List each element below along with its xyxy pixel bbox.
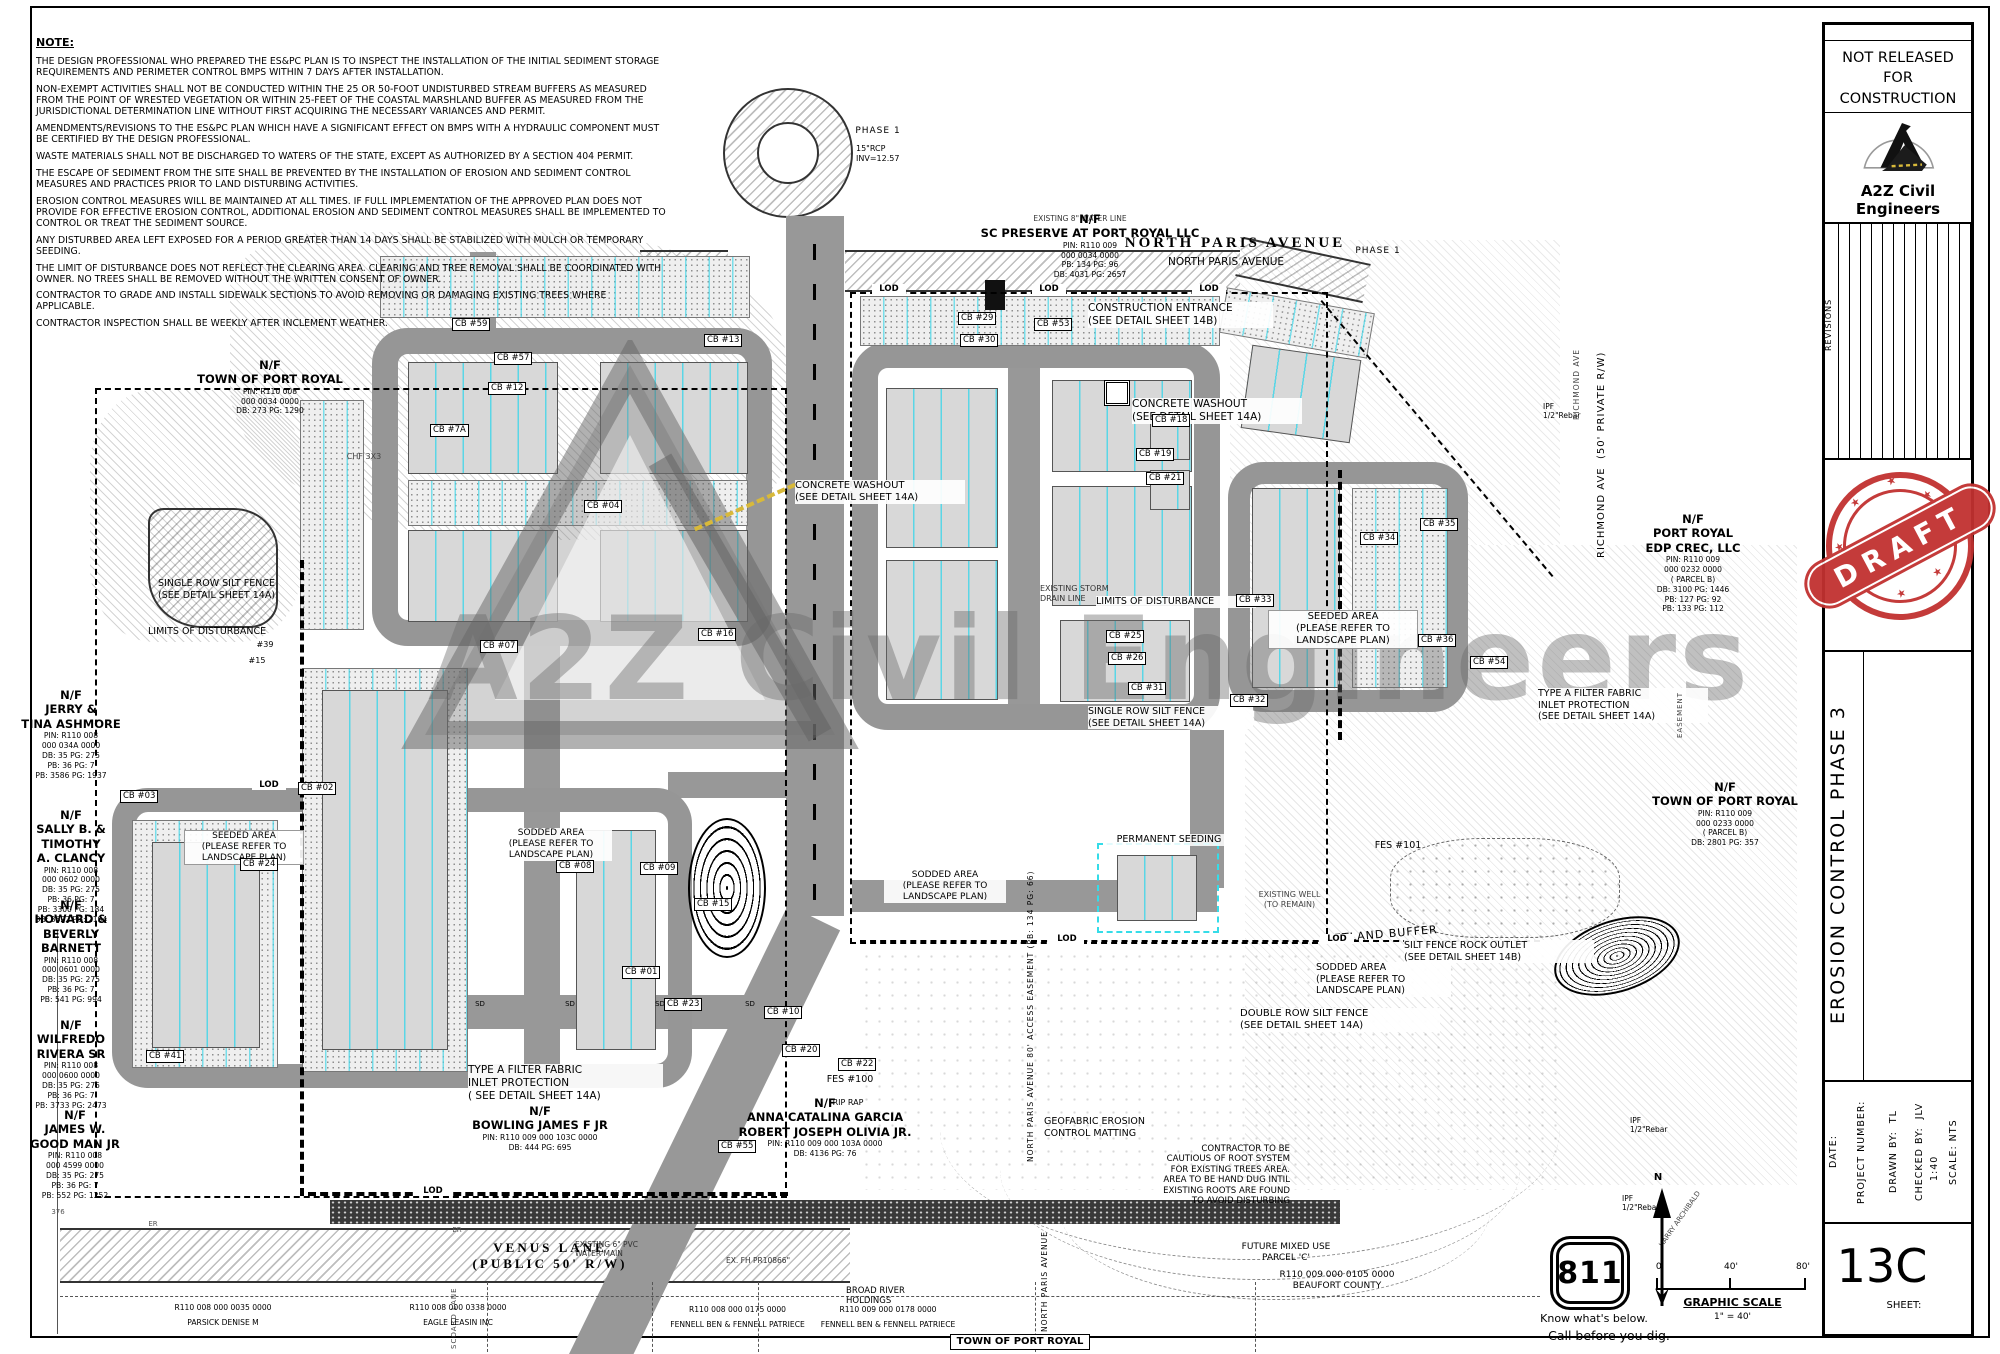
owner-label: N/F TOWN OF PORT ROYAL PIN: R110 009 000… bbox=[1640, 780, 1810, 848]
cb-label: CB #23 bbox=[664, 998, 702, 1011]
owner-name: N/F JAMES W. GOOD MAN JR bbox=[5, 1108, 145, 1151]
callout-existing-well: EXISTING WELL (TO REMAIN) bbox=[1232, 890, 1347, 910]
callout-chf: CHF 3X3 bbox=[334, 452, 394, 462]
owner-name: N/F WILFREDO RIVERA SR bbox=[5, 1018, 137, 1061]
north-arrow-icon bbox=[1640, 1188, 1684, 1314]
callout-fes-100: FES #100 bbox=[814, 1074, 886, 1086]
cb-label: CB #09 bbox=[640, 862, 678, 875]
field-project-number: PROJECT NUMBER: bbox=[1856, 1088, 1870, 1216]
dig-811-icon: 811 bbox=[1556, 1242, 1624, 1304]
note-item: WASTE MATERIALS SHALL NOT BE DISCHARGED … bbox=[36, 152, 668, 163]
cb-label: CB #36 bbox=[1418, 634, 1456, 647]
cb-label: CB #24 bbox=[240, 858, 278, 871]
note-item: THE ESCAPE OF SEDIMENT FROM THE SITE SHA… bbox=[36, 169, 668, 191]
cb-label: CB #26 bbox=[1108, 652, 1146, 665]
sheet-title: EROSION CONTROL PHASE 3 bbox=[1827, 658, 1863, 1072]
field-scale: SCALE: NTS bbox=[1948, 1088, 1962, 1216]
callout-rcp: 15"RCP INV=12.57 bbox=[856, 144, 926, 164]
owner-label: N/F HOWARD & BEVERLY BARNETT PIN: R110 0… bbox=[5, 898, 137, 1005]
lod-label: LOD bbox=[1320, 934, 1354, 944]
owner-details: PIN: R110 009 000 0233 0000 ( PARCEL B) … bbox=[1640, 809, 1810, 848]
owner-name: N/F HOWARD & BEVERLY BARNETT bbox=[5, 898, 137, 956]
owner-details: PIN: R110 008 000 0034 0000 DB: 273 PG: … bbox=[185, 387, 355, 417]
callout-contractor-roots: CONTRACTOR TO BE CAUTIOUS OF ROOT SYSTEM… bbox=[1080, 1144, 1290, 1207]
sd-label: SD bbox=[470, 1000, 490, 1009]
silt-fence bbox=[308, 1192, 788, 1196]
notes-title: NOTE: bbox=[36, 36, 668, 49]
lod-label: LOD bbox=[1050, 934, 1084, 944]
callout-ipf: IPF 1/2"Rebar bbox=[1630, 1116, 1690, 1134]
sd-label: SD bbox=[560, 1000, 580, 1009]
callout-fes-101: FES #101 bbox=[1362, 840, 1434, 852]
field-checked-scale: 1:40 bbox=[1929, 1120, 1941, 1216]
note-item: CONTRACTOR TO GRADE AND INSTALL SIDEWALK… bbox=[36, 291, 668, 313]
revisions-grid bbox=[1838, 224, 1974, 458]
callout-future-use: FUTURE MIXED USE PARCEL 'C' bbox=[1216, 1242, 1356, 1264]
sheet-canvas: A2Z Civil Engineers NOTE: THE DESIGN PRO… bbox=[0, 0, 2000, 1354]
lod-label: LOD bbox=[416, 1186, 450, 1196]
lod-label: LOD bbox=[1032, 284, 1066, 294]
callout-sodded-area: SODDED AREA (PLEASE REFER TO LANDSCAPE P… bbox=[884, 870, 1006, 903]
owner-label: N/F JAMES W. GOOD MAN JR PIN: R110 008 0… bbox=[5, 1108, 145, 1200]
owner-label: N/F ANNA CATALINA GARCIA ROBERT JOSEPH O… bbox=[690, 1096, 960, 1159]
callout-sodded-area: SODDED AREA (PLEASE REFER TO LANDSCAPE P… bbox=[490, 828, 612, 861]
cb-label: CB #07 bbox=[480, 640, 518, 653]
owner-details: PIN: R110 009 000 0034 0000 PB: 134 PG: … bbox=[1030, 241, 1150, 280]
note-item: THE LIMIT OF DISTURBANCE DOES NOT REFLEC… bbox=[36, 264, 668, 286]
parcel-divider bbox=[1255, 1282, 1256, 1352]
callout-limits: LIMITS OF DISTURBANCE bbox=[148, 626, 308, 638]
callout-limits: LIMITS OF DISTURBANCE bbox=[1096, 596, 1256, 608]
north-label: N bbox=[1648, 1172, 1668, 1184]
label-phase-1: PHASE 1 bbox=[846, 126, 910, 137]
cb-label: CB #25 bbox=[1106, 630, 1144, 643]
callout-silt-fence: SINGLE ROW SILT FENCE (SEE DETAIL SHEET … bbox=[158, 578, 323, 601]
owner-label: N/F TOWN OF PORT ROYAL PIN: R110 008 000… bbox=[185, 358, 355, 416]
cb-label: CB #18 bbox=[1152, 414, 1190, 427]
label-phase-1: PHASE 1 bbox=[1346, 246, 1410, 257]
cb-label: CB #19 bbox=[1136, 448, 1174, 461]
owner-label: N/F PORT ROYAL EDP CREC, LLC PIN: R110 0… bbox=[1618, 512, 1768, 614]
owner-name: N/F ANNA CATALINA GARCIA ROBERT JOSEPH O… bbox=[690, 1096, 960, 1139]
cb-label: CB #33 bbox=[1236, 594, 1274, 607]
cb-label: CB #30 bbox=[960, 334, 998, 347]
cb-label: CB #03 bbox=[120, 790, 158, 803]
owner-label: N/F WILFREDO RIVERA SR PIN: R110 008 000… bbox=[5, 1018, 137, 1110]
owner-name: N/F BOWLING JAMES F JR bbox=[440, 1104, 640, 1133]
callout-er: ER bbox=[446, 1226, 468, 1235]
cb-label: CB #54 bbox=[1470, 656, 1508, 669]
cb-label: CB #7A bbox=[430, 424, 469, 437]
road-label-paris-bottom: NORTH PARIS AVENUE bbox=[1040, 1222, 1052, 1342]
label-easement: EASEMENT bbox=[1676, 680, 1688, 750]
sheet-number: 13C bbox=[1836, 1238, 1928, 1294]
note-item: CONTRACTOR INSPECTION SHALL BE WEEKLY AF… bbox=[36, 319, 668, 330]
owner-details: PIN: R110 009 000 0232 0000 ( PARCEL B) … bbox=[1618, 555, 1768, 614]
road-label-venus-lane: VENUS LANE (PUBLIC 50' R/W) bbox=[460, 1240, 640, 1272]
scale-tick-80: 80' bbox=[1788, 1262, 1818, 1273]
release-note: NOT RELEASED FOR CONSTRUCTION bbox=[1826, 48, 1970, 109]
road-label-richmond: RICHMOND AVE (50' PRIVATE R/W) bbox=[1596, 280, 1612, 630]
callout-hash39: #39 bbox=[248, 640, 282, 650]
parcel-line bbox=[60, 1296, 1540, 1297]
cb-label: CB #20 bbox=[782, 1044, 820, 1057]
callout-er: ER bbox=[142, 1220, 164, 1229]
note-item: THE DESIGN PROFESSIONAL WHO PREPARED THE… bbox=[36, 57, 668, 79]
owner-name: N/F PORT ROYAL EDP CREC, LLC bbox=[1618, 512, 1768, 555]
tb-divider bbox=[1822, 112, 1974, 113]
cb-label: CB #16 bbox=[698, 628, 736, 641]
owner-name: N/F SALLY B. & TIMOTHY A. CLANCY bbox=[5, 808, 137, 866]
revisions-label: REVISIONS bbox=[1824, 280, 1836, 370]
parcel-label: R110 008 000 0338 0000 EAGLE LEASIN INC bbox=[358, 1300, 558, 1330]
cb-label: CB #53 bbox=[1034, 318, 1072, 331]
owner-name: N/F JERRY & TINA ASHMORE bbox=[5, 688, 137, 731]
sheet-number-label: SHEET: bbox=[1874, 1300, 1934, 1312]
callout-concrete-washout: CONCRETE WASHOUT (SEE DETAIL SHEET 14A) bbox=[795, 480, 965, 504]
parcel-label: R110 008 000 0035 0000 PARSICK DENISE M bbox=[118, 1300, 328, 1330]
lod-label: LOD bbox=[252, 780, 286, 790]
callout-fire-hydrant: EX. FH PR10866" bbox=[726, 1256, 826, 1265]
field-drawn-by: DRAWN BY: TL bbox=[1888, 1088, 1902, 1216]
label-town-of-port-royal: TOWN OF PORT ROYAL bbox=[950, 1334, 1090, 1350]
cb-label: CB #02 bbox=[298, 782, 336, 795]
callout-geofabric: GEOFABRIC EROSION CONTROL MATTING bbox=[1044, 1116, 1204, 1139]
scale-bar-mid bbox=[1729, 1278, 1731, 1290]
company-logo-icon bbox=[1858, 118, 1938, 176]
note-item: NON-EXEMPT ACTIVITIES SHALL NOT BE CONDU… bbox=[36, 85, 668, 118]
dig-know-text: Know what's below. bbox=[1524, 1312, 1664, 1325]
tb-divider bbox=[1822, 458, 1974, 460]
tb-divider bbox=[1822, 1222, 1974, 1224]
cb-label: CB #57 bbox=[494, 352, 532, 365]
company-name: A2Z Civil Engineers bbox=[1824, 182, 1972, 219]
cb-label: CB #13 bbox=[704, 334, 742, 347]
tb-divider bbox=[1863, 650, 1864, 1080]
cb-label: CB #32 bbox=[1230, 694, 1268, 707]
owner-name: N/F TOWN OF PORT ROYAL bbox=[1640, 780, 1810, 809]
callout-double-silt-fence: DOUBLE ROW SILT FENCE (SEE DETAIL SHEET … bbox=[1240, 1008, 1440, 1032]
callout-permanent-seeding: PERMANENT SEEDING bbox=[1104, 834, 1234, 846]
road-label-paris-easement: NORTH PARIS AVENUE 80' ACCESS EASEMENT (… bbox=[1026, 846, 1040, 1186]
lod-label: LOD bbox=[1192, 284, 1226, 294]
cb-label: CB #21 bbox=[1146, 472, 1184, 485]
owner-name: N/F SC PRESERVE AT PORT ROYAL LLC bbox=[975, 212, 1205, 241]
callout-rock-outlet: SILT FENCE ROCK OUTLET (SEE DETAIL SHEET… bbox=[1404, 940, 1594, 963]
owner-details: PIN: R110 009 000 103C 0000 DB: 444 PG: … bbox=[440, 1133, 640, 1153]
tb-divider bbox=[1822, 40, 1974, 41]
cb-label: CB #08 bbox=[556, 860, 594, 873]
callout-376: 376 bbox=[42, 1208, 74, 1217]
tb-divider bbox=[1822, 650, 1974, 652]
callout-beaufort: R110 009 000 0105 0000 BEAUFORT COUNTY bbox=[1252, 1270, 1422, 1292]
note-item: ANY DISTURBED AREA LEFT EXPOSED FOR A PE… bbox=[36, 236, 668, 258]
parcel-label: R110 009 000 0178 0000 FENNELL BEN & FEN… bbox=[788, 1302, 988, 1332]
note-item: EROSION CONTROL MEASURES WILL BE MAINTAI… bbox=[36, 197, 668, 230]
scale-tick-40: 40' bbox=[1716, 1262, 1746, 1273]
owner-details: PIN: R110 008 000 034A 0000 DB: 35 PG: 2… bbox=[5, 731, 137, 780]
cb-label: CB #41 bbox=[146, 1050, 184, 1063]
notes-block: NOTE: THE DESIGN PROFESSIONAL WHO PREPAR… bbox=[36, 36, 668, 330]
callout-construction-entrance: CONSTRUCTION ENTRANCE (SEE DETAIL SHEET … bbox=[1088, 302, 1273, 328]
callout-sodded-area: SODDED AREA (PLEASE REFER TO LANDSCAPE P… bbox=[1316, 962, 1451, 997]
sd-label: SD bbox=[740, 1000, 760, 1009]
cb-label: CB #12 bbox=[488, 382, 526, 395]
callout-silt-fence: SINGLE ROW SILT FENCE (SEE DETAIL SHEET … bbox=[1088, 706, 1253, 729]
scale-bar bbox=[1656, 1278, 1806, 1290]
owner-label: N/F BOWLING JAMES F JR PIN: R110 009 000… bbox=[440, 1104, 640, 1152]
cb-label: CB #01 bbox=[622, 966, 660, 979]
cb-label: CB #34 bbox=[1360, 532, 1398, 545]
cb-label: CB #29 bbox=[958, 312, 996, 325]
callout-seeded-area: SEEDED AREA (PLEASE REFER TO LANDSCAPE P… bbox=[1268, 610, 1418, 649]
road-label-richmond-small: RICHMOND AVE bbox=[1572, 320, 1584, 450]
cb-label: CB #35 bbox=[1420, 518, 1458, 531]
owner-details: PIN: R110 008 000 4599 0000 DB: 35 PG: 2… bbox=[5, 1151, 145, 1200]
cb-label: CB #31 bbox=[1128, 682, 1166, 695]
cb-label: CB #04 bbox=[584, 500, 622, 513]
owner-label: N/F JERRY & TINA ASHMORE PIN: R110 008 0… bbox=[5, 688, 137, 780]
callout-inlet-protection: TYPE A FILTER FABRIC INLET PROTECTION ( … bbox=[468, 1064, 663, 1102]
tb-divider bbox=[1822, 1080, 1974, 1082]
field-date: DATE: bbox=[1828, 1088, 1842, 1216]
dig-call-text: Call before you dig. bbox=[1534, 1328, 1684, 1343]
roundabout-island bbox=[757, 122, 819, 184]
cb-label: CB #22 bbox=[838, 1058, 876, 1071]
cb-label: CB #15 bbox=[694, 898, 732, 911]
owner-details: PIN: R110 008 000 0600 0000 DB: 35 PG: 2… bbox=[5, 1061, 137, 1110]
field-checked-by: CHECKED BY: JLV bbox=[1914, 1088, 1928, 1216]
note-item: AMENDMENTS/REVISIONS TO THE ES&PC PLAN W… bbox=[36, 124, 668, 146]
owner-details: PIN: R110 008 000 0601 0000 DB: 35 PG: 2… bbox=[5, 956, 137, 1005]
owner-details: PIN: R110 009 000 103A 0000 DB: 4136 PG:… bbox=[690, 1139, 960, 1159]
silt-fence bbox=[300, 560, 304, 1196]
callout-hash15: #15 bbox=[240, 656, 274, 666]
cb-label: CB #10 bbox=[764, 1006, 802, 1019]
owner-name: N/F TOWN OF PORT ROYAL bbox=[185, 358, 355, 387]
dig-811-number: 811 bbox=[1557, 1256, 1623, 1291]
lod-label: LOD bbox=[872, 284, 906, 294]
owner-label: N/F SC PRESERVE AT PORT ROYAL LLC PIN: R… bbox=[975, 212, 1205, 280]
